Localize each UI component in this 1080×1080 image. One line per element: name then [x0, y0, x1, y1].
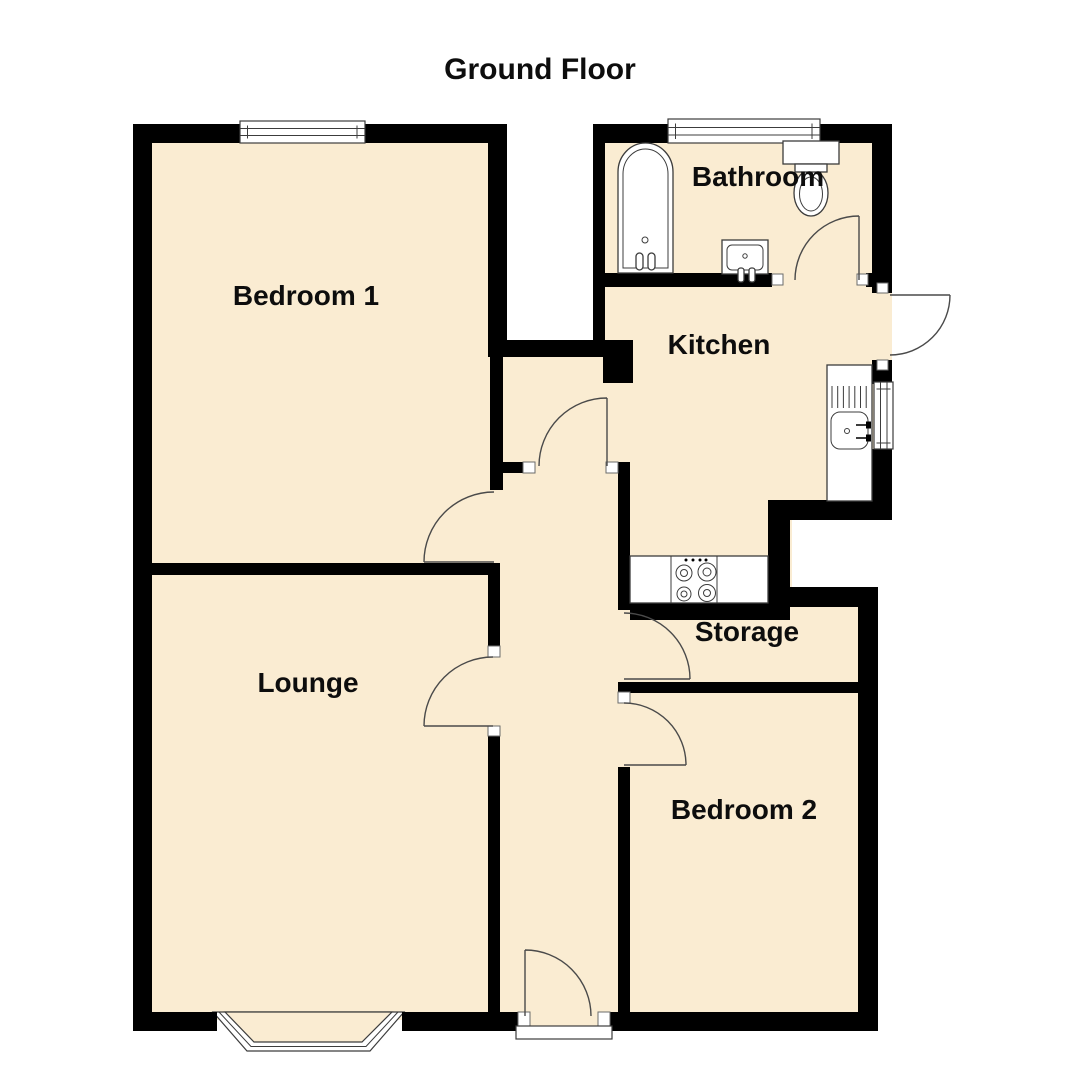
basin-tap	[738, 268, 744, 282]
door-stop	[523, 462, 535, 473]
door-stop	[518, 1012, 530, 1027]
basin-tap	[749, 268, 755, 282]
door-stop	[488, 726, 500, 736]
floor-plan-canvas: Ground Floor Bedroom 1 Bathroom Kitchen …	[0, 0, 1080, 1080]
kitchen-window	[874, 382, 893, 449]
wall-segment	[858, 587, 878, 1031]
hob-knob	[699, 559, 702, 562]
bathtub-tap	[636, 253, 643, 270]
sink-tap-head	[866, 435, 871, 442]
wall-segment	[152, 563, 500, 575]
wall-segment	[605, 273, 772, 287]
wall-segment	[488, 340, 633, 357]
door-stop	[618, 692, 630, 703]
wall-segment	[872, 449, 892, 500]
wall-segment	[618, 462, 630, 610]
bathroom-window	[668, 119, 820, 143]
back-doorway-floor	[860, 293, 892, 360]
wall-segment	[593, 143, 605, 357]
room-label-kitchen: Kitchen	[668, 329, 771, 360]
bay-window	[213, 1012, 404, 1051]
wall-segment	[488, 726, 500, 1012]
room-label-bedroom1: Bedroom 1	[233, 280, 379, 311]
wall-segment	[133, 124, 152, 1031]
bedroom1-floor	[140, 130, 500, 575]
door-stop	[772, 274, 783, 285]
sink-tap-head	[866, 422, 871, 429]
hob-knob	[705, 559, 708, 562]
wall-segment	[618, 682, 858, 693]
hob	[630, 556, 768, 603]
room-label-bathroom: Bathroom	[692, 161, 824, 192]
hob-knob	[685, 559, 688, 562]
window-frame	[668, 119, 820, 143]
wall-segment	[768, 500, 790, 607]
sink-counter	[827, 365, 872, 501]
kitchen-sink-counter	[827, 365, 872, 501]
bedroom1-window	[240, 121, 365, 143]
door-swing	[890, 295, 950, 355]
wall-segment	[603, 357, 633, 383]
wall-segment	[402, 1012, 518, 1031]
lounge-floor	[140, 570, 500, 1020]
hob-knob	[692, 559, 695, 562]
bathtub	[618, 143, 673, 273]
room-label-lounge: Lounge	[257, 667, 358, 698]
wall-segment	[503, 462, 523, 473]
room-label-bedroom2: Bedroom 2	[671, 794, 817, 825]
wall-segment	[618, 767, 630, 1012]
wall-segment	[490, 340, 503, 490]
window-frame	[874, 382, 893, 449]
door-stop	[877, 283, 888, 293]
hall-floor	[497, 350, 632, 1027]
wall-segment	[133, 1012, 217, 1031]
floor-plan: Ground Floor Bedroom 1 Bathroom Kitchen …	[0, 0, 1080, 1080]
door-stop	[877, 360, 888, 370]
bathtub-tap	[648, 253, 655, 270]
door-stop	[488, 646, 500, 657]
wall-segment	[872, 143, 892, 293]
bathtub-outer	[618, 143, 673, 273]
room-label-storage: Storage	[695, 616, 799, 647]
bay-window-inner	[225, 1012, 392, 1042]
wall-segment	[488, 563, 500, 647]
door-stop	[606, 462, 618, 473]
threshold	[516, 1026, 612, 1039]
front-door-threshold	[516, 1026, 612, 1039]
page-title: Ground Floor	[444, 53, 636, 86]
wall-segment	[610, 1012, 878, 1031]
wall-segment	[488, 124, 507, 343]
door-stop	[598, 1012, 610, 1027]
window-frame	[240, 121, 365, 143]
back-door	[890, 295, 950, 355]
